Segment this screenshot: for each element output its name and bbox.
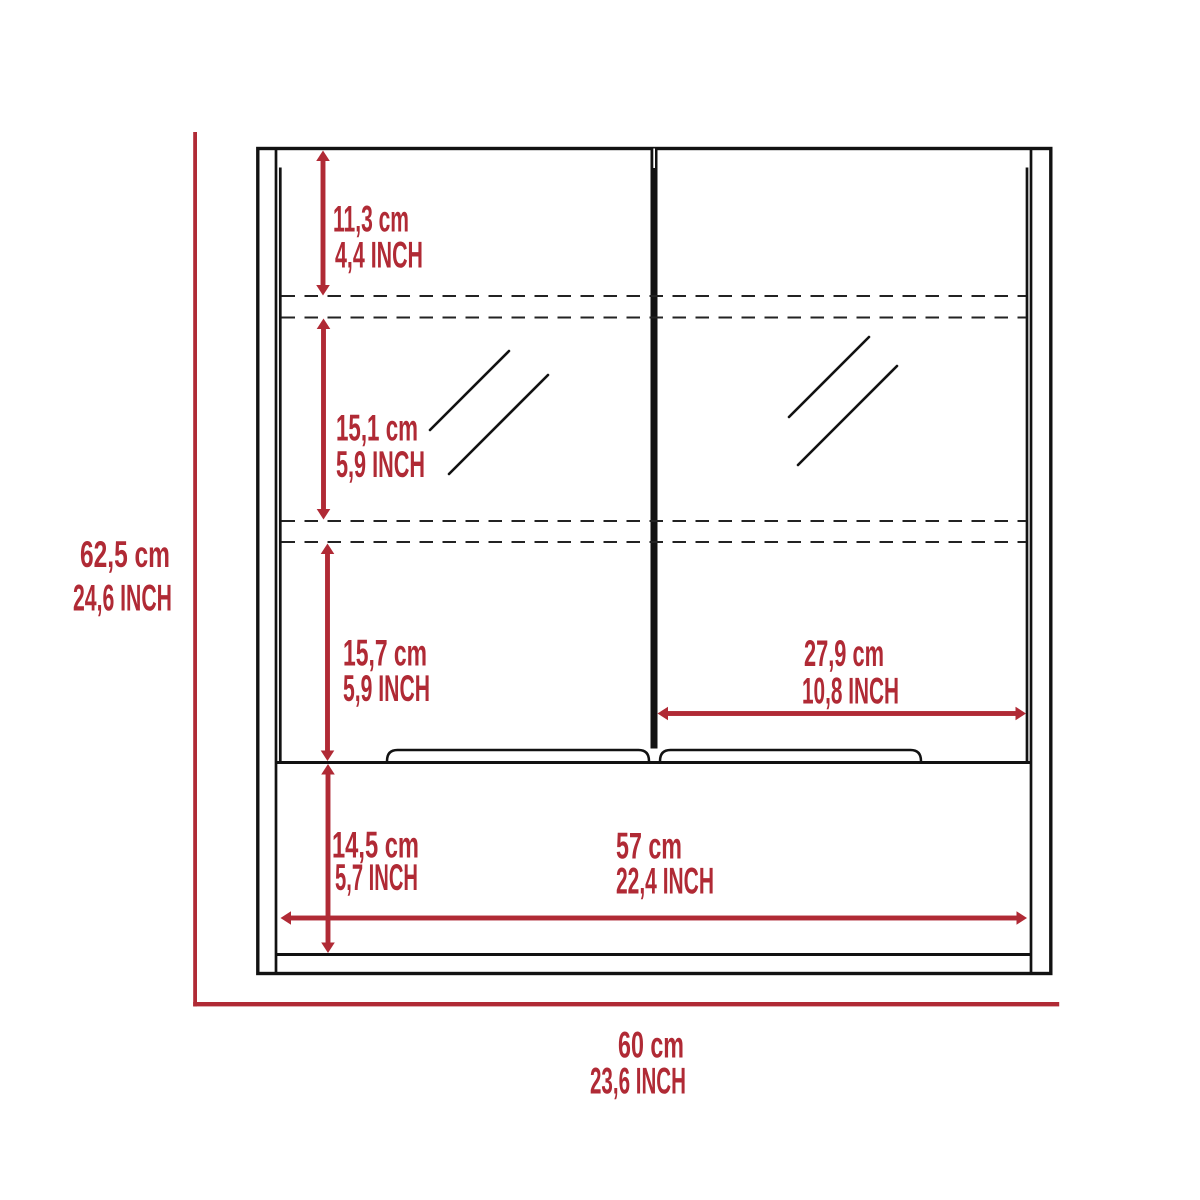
svg-text:5,9 INCH: 5,9 INCH	[336, 444, 425, 485]
svg-text:11,3 cm: 11,3 cm	[333, 199, 409, 240]
svg-text:5,9 INCH: 5,9 INCH	[343, 668, 430, 709]
svg-text:10,8 INCH: 10,8 INCH	[802, 671, 899, 712]
svg-text:60 cm: 60 cm	[618, 1025, 684, 1066]
svg-text:22,4 INCH: 22,4 INCH	[616, 861, 714, 902]
svg-text:4,4 INCH: 4,4 INCH	[335, 235, 423, 276]
svg-text:27,9 cm: 27,9 cm	[804, 633, 884, 674]
svg-text:5,7 INCH: 5,7 INCH	[335, 857, 418, 898]
svg-text:24,6 INCH: 24,6 INCH	[73, 578, 172, 619]
svg-text:23,6 INCH: 23,6 INCH	[590, 1061, 686, 1102]
svg-text:62,5 cm: 62,5 cm	[80, 534, 170, 575]
svg-text:15,1 cm: 15,1 cm	[336, 408, 418, 449]
